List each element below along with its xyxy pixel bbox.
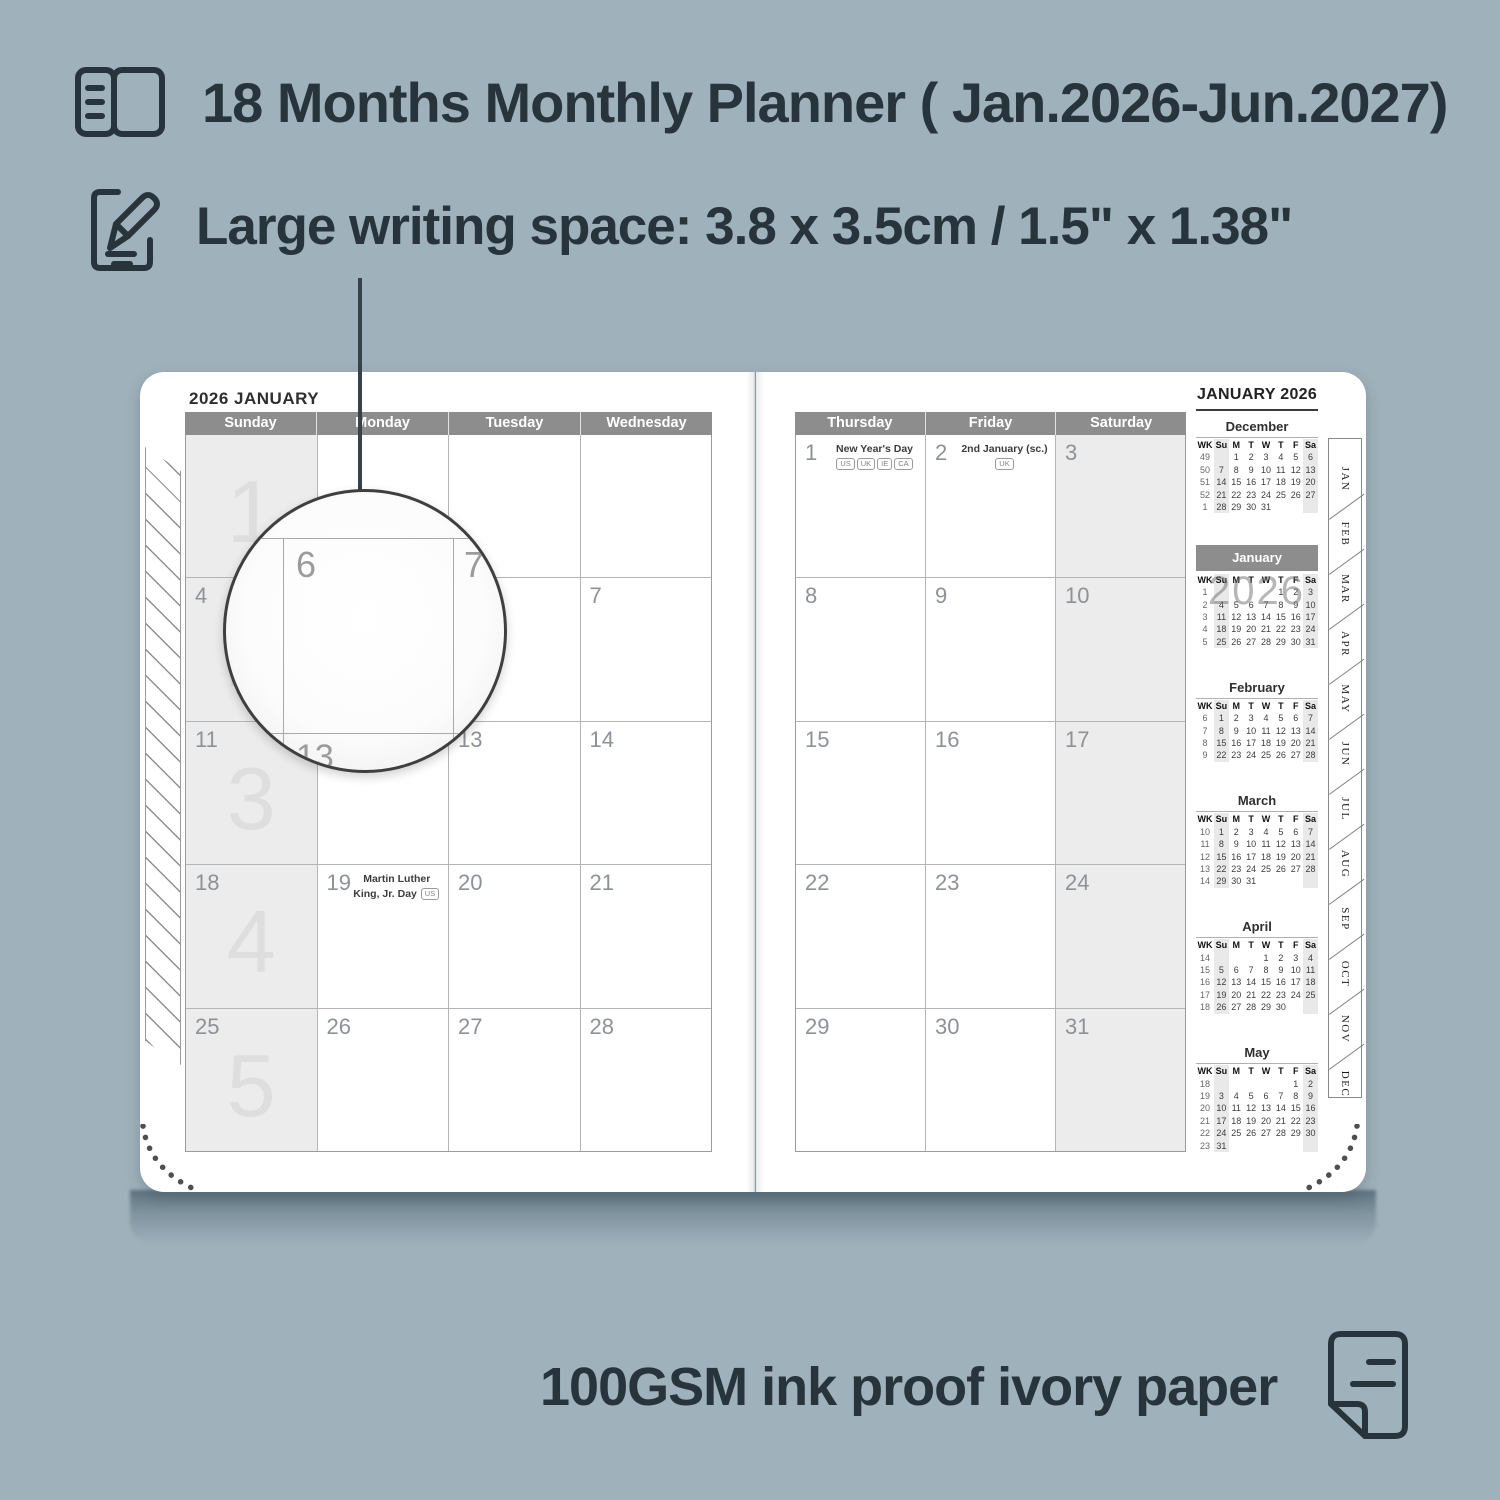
mini-header-cell: M <box>1229 1065 1244 1077</box>
mini-header-cell: T <box>1273 439 1288 451</box>
date-number: 29 <box>805 1014 829 1040</box>
mini-week-number: 2 <box>1196 599 1214 611</box>
mini-week-number: 10 <box>1196 826 1214 838</box>
mini-day-cell: 3 <box>1303 586 1318 598</box>
mini-day-cell: 31 <box>1214 1140 1229 1152</box>
mini-day-cell: 16 <box>1244 476 1259 488</box>
mini-day-cell: 30 <box>1273 1001 1288 1013</box>
date-number: 30 <box>935 1014 959 1040</box>
mini-week-number: 12 <box>1196 851 1214 863</box>
mini-day-cell <box>1303 1001 1318 1013</box>
feature-paper-text: 100GSM ink proof ivory paper <box>540 1356 1277 1418</box>
mini-day-cell: 25 <box>1303 989 1318 1001</box>
mini-day-cell: 30 <box>1244 501 1259 513</box>
day-cell: 22 <box>796 865 925 1007</box>
mini-week-number: 22 <box>1196 1127 1214 1139</box>
mini-day-cell: 26 <box>1273 863 1288 875</box>
day-cell: 9 <box>925 578 1055 720</box>
mini-day-cell: 22 <box>1214 863 1229 875</box>
mini-header-cell: T <box>1244 1065 1259 1077</box>
mini-week-number: 5 <box>1196 636 1214 648</box>
day-header-monday: Monday <box>316 412 448 435</box>
mini-header-cell: W <box>1259 939 1274 951</box>
date-number: 18 <box>195 870 219 896</box>
mini-day-cell: 28 <box>1303 749 1318 761</box>
magnified-date-6: 6 <box>296 544 316 586</box>
mini-day-cell: 28 <box>1273 1127 1288 1139</box>
mini-header-cell: WK <box>1196 1065 1214 1077</box>
mini-day-cell: 29 <box>1273 636 1288 648</box>
mini-day-cell: 15 <box>1288 1102 1303 1114</box>
date-number: 19 <box>327 870 351 896</box>
mini-day-cell: 8 <box>1214 725 1229 737</box>
mini-week-number: 23 <box>1196 1140 1214 1152</box>
holiday-name: New Year's Day <box>836 443 913 455</box>
day-cell: 28 <box>580 1009 712 1151</box>
day-cell: 16 <box>925 722 1055 864</box>
mini-week-number: 50 <box>1196 464 1214 476</box>
day-cell: 14 <box>580 722 712 864</box>
mini-day-cell <box>1288 875 1303 887</box>
mini-day-cell: 24 <box>1303 623 1318 635</box>
mini-header-cell: W <box>1259 439 1274 451</box>
tab-jul: JUL <box>1339 797 1351 820</box>
feature-months-text: 18 Months Monthly Planner ( Jan.2026-Jun… <box>202 70 1447 135</box>
day-cell: 15 <box>796 722 925 864</box>
mini-week-number: 51 <box>1196 476 1214 488</box>
mini-day-cell: 24 <box>1214 1127 1229 1139</box>
book-shadow <box>130 1190 1376 1244</box>
tab-divider <box>1329 769 1365 795</box>
mini-day-cell <box>1214 952 1229 964</box>
tab-feb: FEB <box>1339 522 1351 547</box>
date-number: 25 <box>195 1014 219 1040</box>
mini-week-number: 52 <box>1196 489 1214 501</box>
mini-day-cell: 14 <box>1214 476 1229 488</box>
day-cell: 26 <box>317 1009 449 1151</box>
mini-day-cell: 2 <box>1273 952 1288 964</box>
mini-week-number: 7 <box>1196 725 1214 737</box>
feature-months: 18 Months Monthly Planner ( Jan.2026-Jun… <box>74 66 1447 138</box>
mini-day-cell: 5 <box>1214 964 1229 976</box>
week-number-watermark: 4 <box>227 892 276 994</box>
mini-day-cell: 2 <box>1229 712 1244 724</box>
mini-week-number: 21 <box>1196 1115 1214 1127</box>
mini-day-cell: 7 <box>1273 1090 1288 1102</box>
mini-day-cell: 9 <box>1229 725 1244 737</box>
day-cell: 21 <box>580 865 712 1007</box>
mini-day-cell: 30 <box>1288 636 1303 648</box>
month-grid-body: 1New Year's Day USUKIECA22nd January (sc… <box>795 435 1186 1152</box>
mini-week-number: 1 <box>1196 586 1214 598</box>
tab-divider <box>1329 879 1365 905</box>
sidebar-title: JANUARY 2026 <box>1196 386 1318 404</box>
day-cell: 1New Year's Day USUKIECA <box>796 435 925 577</box>
mini-day-cell: 19 <box>1273 737 1288 749</box>
tab-nov: NOV <box>1339 1015 1351 1043</box>
mini-day-cell <box>1288 1140 1303 1152</box>
day-cell: 7 <box>580 578 712 720</box>
mini-day-cell: 18 <box>1259 851 1274 863</box>
mini-day-cell: 18 <box>1259 737 1274 749</box>
mini-day-cell: 10 <box>1303 599 1318 611</box>
mini-day-cell: 21 <box>1259 623 1274 635</box>
mini-day-cell: 8 <box>1214 838 1229 850</box>
mini-header-cell: Su <box>1214 439 1229 451</box>
date-number: 4 <box>195 583 207 609</box>
mini-calendar-may: MayWKSuMTWTFSa18121934567892010111213141… <box>1196 1045 1318 1152</box>
mini-day-cell: 27 <box>1288 863 1303 875</box>
mini-week-number: 18 <box>1196 1078 1214 1090</box>
mini-day-cell: 21 <box>1244 989 1259 1001</box>
mini-day-cell <box>1244 1140 1259 1152</box>
mini-calendar-stack: DecemberWKSuMTWTFSa491234565078910111213… <box>1196 419 1318 1152</box>
mini-day-cell: 10 <box>1214 1102 1229 1114</box>
mini-month-title: April <box>1196 919 1318 934</box>
mini-week-number: 4 <box>1196 623 1214 635</box>
day-cell: 31 <box>1055 1009 1185 1151</box>
mini-day-cell <box>1229 952 1244 964</box>
mini-week-number: 17 <box>1196 989 1214 1001</box>
mini-day-cell: 29 <box>1229 501 1244 513</box>
mini-day-cell: 3 <box>1288 952 1303 964</box>
date-number: 1 <box>805 440 817 466</box>
tab-oct: OCT <box>1339 961 1351 988</box>
mini-day-cell: 29 <box>1288 1127 1303 1139</box>
paper-sheet-icon <box>1321 1330 1413 1444</box>
mini-day-cell: 1 <box>1214 712 1229 724</box>
mini-header-cell: F <box>1288 439 1303 451</box>
mini-day-cell: 23 <box>1244 489 1259 501</box>
mini-day-cell: 20 <box>1244 623 1259 635</box>
mini-day-cell: 1 <box>1288 1078 1303 1090</box>
mini-day-cell: 22 <box>1273 623 1288 635</box>
mini-day-cell: 29 <box>1259 1001 1274 1013</box>
mini-month-title-highlight: January <box>1196 545 1318 571</box>
mini-day-cell: 6 <box>1288 712 1303 724</box>
mini-day-cell: 16 <box>1288 611 1303 623</box>
country-badge: US <box>836 458 854 470</box>
tab-divider <box>1329 1044 1365 1070</box>
mini-day-cell: 25 <box>1259 863 1274 875</box>
mini-day-cell <box>1288 1001 1303 1013</box>
mini-day-cell: 28 <box>1214 501 1229 513</box>
date-number: 10 <box>1065 583 1089 609</box>
day-cell: 20 <box>448 865 580 1007</box>
mini-day-cell: 25 <box>1273 489 1288 501</box>
day-cell <box>580 435 712 577</box>
mini-day-cell: 4 <box>1273 451 1288 463</box>
tab-may: MAY <box>1339 684 1351 713</box>
day-cell: 17 <box>1055 722 1185 864</box>
holiday-note: New Year's Day USUKIECA <box>828 443 921 471</box>
mini-week-number: 1 <box>1196 501 1214 513</box>
mini-day-cell: 12 <box>1273 838 1288 850</box>
mini-day-cell: 20 <box>1288 851 1303 863</box>
mini-month-table: WKSuMTWTFSa11232456789103111213141516174… <box>1196 573 1318 648</box>
day-header-tuesday: Tuesday <box>448 412 580 435</box>
mini-month-table: WKSuMTWTFSa18121934567892010111213141516… <box>1196 1063 1318 1152</box>
mini-day-cell: 31 <box>1244 875 1259 887</box>
tab-mar: MAR <box>1339 574 1351 604</box>
week-row: 41819Martin Luther King, Jr. Day US2021 <box>186 864 711 1007</box>
mini-calendar-march: MarchWKSuMTWTFSa101234567118910111213141… <box>1196 793 1318 887</box>
mini-day-cell: 9 <box>1244 464 1259 476</box>
mini-week-number: 14 <box>1196 875 1214 887</box>
week-number-watermark: 5 <box>227 1035 276 1137</box>
mini-day-cell: 28 <box>1303 863 1318 875</box>
day-header-friday: Friday <box>925 412 1056 435</box>
mini-day-cell: 3 <box>1214 1090 1229 1102</box>
mini-day-cell: 3 <box>1244 712 1259 724</box>
mini-header-cell: Sa <box>1303 939 1318 951</box>
mini-day-cell: 20 <box>1259 1115 1274 1127</box>
day-header-row: ThursdayFridaySaturday <box>795 412 1186 435</box>
mini-day-cell: 10 <box>1288 964 1303 976</box>
mini-week-number: 49 <box>1196 451 1214 463</box>
date-number: 14 <box>590 727 614 753</box>
mini-week-number: 11 <box>1196 838 1214 850</box>
mini-day-cell: 16 <box>1229 851 1244 863</box>
mini-day-cell: 13 <box>1244 611 1259 623</box>
mini-day-cell <box>1273 1140 1288 1152</box>
mini-header-cell: WK <box>1196 574 1214 586</box>
date-number: 20 <box>458 870 482 896</box>
mini-day-cell <box>1273 1078 1288 1090</box>
book-icon <box>74 66 166 138</box>
mini-month-title: May <box>1196 1045 1318 1060</box>
mini-day-cell: 17 <box>1303 611 1318 623</box>
corner-dots-left <box>138 1124 198 1194</box>
mini-day-cell: 21 <box>1273 1115 1288 1127</box>
mini-day-cell: 13 <box>1288 725 1303 737</box>
day-cell: 30 <box>925 1009 1055 1151</box>
mini-week-number: 6 <box>1196 712 1214 724</box>
week-row: 222324 <box>796 864 1185 1007</box>
mini-day-cell: 15 <box>1229 476 1244 488</box>
mini-day-cell: 26 <box>1214 1001 1229 1013</box>
mini-day-cell: 23 <box>1229 863 1244 875</box>
mini-day-cell: 7 <box>1303 712 1318 724</box>
mini-day-cell: 26 <box>1229 636 1244 648</box>
mini-header-cell: Sa <box>1303 1065 1318 1077</box>
mini-day-cell: 9 <box>1273 964 1288 976</box>
mini-day-cell: 22 <box>1229 489 1244 501</box>
mini-header-cell: T <box>1244 439 1259 451</box>
sidebar-title-rule <box>1196 409 1318 411</box>
mini-header-cell: Su <box>1214 1065 1229 1077</box>
feature-writing-text: Large writing space: 3.8 x 3.5cm / 1.5" … <box>196 196 1292 257</box>
mini-month-title: December <box>1196 419 1318 434</box>
mini-header-cell: Su <box>1214 813 1229 825</box>
mini-header-cell: Su <box>1214 939 1229 951</box>
mini-day-cell: 12 <box>1273 725 1288 737</box>
tab-jan: JAN <box>1339 467 1351 492</box>
mini-day-cell: 6 <box>1259 1090 1274 1102</box>
mini-header-cell: F <box>1288 813 1303 825</box>
mini-day-cell: 1 <box>1229 451 1244 463</box>
mini-month-title: March <box>1196 793 1318 808</box>
mini-day-cell: 20 <box>1229 989 1244 1001</box>
mini-day-cell: 3 <box>1259 451 1274 463</box>
mini-day-cell: 12 <box>1214 976 1229 988</box>
mini-day-cell: 1 <box>1214 826 1229 838</box>
mini-header-cell: F <box>1288 939 1303 951</box>
day-header-sunday: Sunday <box>185 412 316 435</box>
date-number: 9 <box>935 583 947 609</box>
day-cell: 13 <box>448 722 580 864</box>
mini-day-cell: 19 <box>1273 851 1288 863</box>
day-cell: 525 <box>186 1009 317 1151</box>
mini-day-cell: 7 <box>1303 826 1318 838</box>
mini-day-cell: 16 <box>1273 976 1288 988</box>
mini-header-cell: T <box>1273 813 1288 825</box>
mini-day-cell: 27 <box>1288 749 1303 761</box>
page-gutter <box>746 372 764 1192</box>
mini-day-cell <box>1229 1140 1244 1152</box>
mini-day-cell <box>1229 1078 1244 1090</box>
mini-day-cell: 15 <box>1214 737 1229 749</box>
mini-day-cell: 20 <box>1303 476 1318 488</box>
mini-day-cell: 18 <box>1303 976 1318 988</box>
mini-day-cell: 2 <box>1244 451 1259 463</box>
mini-day-cell: 27 <box>1259 1127 1274 1139</box>
mini-day-cell: 25 <box>1214 636 1229 648</box>
mini-day-cell: 6 <box>1229 964 1244 976</box>
date-number: 8 <box>805 583 817 609</box>
mini-day-cell: 8 <box>1273 599 1288 611</box>
mini-day-cell: 29 <box>1214 875 1229 887</box>
mini-day-cell: 11 <box>1303 964 1318 976</box>
mini-month-title: February <box>1196 680 1318 695</box>
mini-day-cell: 13 <box>1229 976 1244 988</box>
mini-day-cell: 25 <box>1259 749 1274 761</box>
mini-header-cell: W <box>1259 574 1274 586</box>
mini-day-cell: 22 <box>1259 989 1274 1001</box>
country-badge: UK <box>995 458 1013 470</box>
tab-aug: AUG <box>1339 850 1351 878</box>
mini-day-cell: 17 <box>1244 851 1259 863</box>
mini-calendar-december: DecemberWKSuMTWTFSa491234565078910111213… <box>1196 419 1318 513</box>
mini-day-cell: 12 <box>1229 611 1244 623</box>
date-number: 11 <box>195 727 218 753</box>
mini-day-cell: 14 <box>1303 725 1318 737</box>
mini-header-cell: M <box>1229 439 1244 451</box>
mini-day-cell <box>1214 451 1229 463</box>
mini-day-cell: 11 <box>1259 838 1274 850</box>
mini-header-cell: W <box>1259 700 1274 712</box>
mini-day-cell: 26 <box>1273 749 1288 761</box>
mini-day-cell: 28 <box>1259 636 1274 648</box>
mini-week-number: 3 <box>1196 611 1214 623</box>
mini-day-cell: 19 <box>1288 476 1303 488</box>
mini-day-cell: 14 <box>1244 976 1259 988</box>
tab-divider <box>1329 989 1365 1015</box>
mini-day-cell: 4 <box>1214 599 1229 611</box>
day-cell: 22nd January (sc.) UK <box>925 435 1055 577</box>
mini-day-cell <box>1288 501 1303 513</box>
date-number: 16 <box>935 727 959 753</box>
tab-jun: JUN <box>1339 742 1351 767</box>
mini-header-cell: T <box>1273 1065 1288 1077</box>
tab-divider <box>1329 714 1365 740</box>
day-cell: 29 <box>796 1009 925 1151</box>
mini-day-cell: 2 <box>1229 826 1244 838</box>
mini-week-number: 9 <box>1196 749 1214 761</box>
mini-week-number: 8 <box>1196 737 1214 749</box>
mini-calendar-april: AprilWKSuMTWTFSa141234155678910111612131… <box>1196 919 1318 1013</box>
mini-day-cell: 31 <box>1303 636 1318 648</box>
date-number: 27 <box>458 1014 482 1040</box>
magnified-grid-line <box>453 538 454 770</box>
mini-day-cell <box>1259 1078 1274 1090</box>
mini-day-cell: 6 <box>1288 826 1303 838</box>
week-row: 8910 <box>796 577 1185 720</box>
mini-header-cell: T <box>1244 700 1259 712</box>
tab-divider <box>1329 824 1365 850</box>
day-cell: 19Martin Luther King, Jr. Day US <box>317 865 449 1007</box>
mini-day-cell: 27 <box>1303 489 1318 501</box>
day-cell: 3 <box>1055 435 1185 577</box>
mini-day-cell: 26 <box>1288 489 1303 501</box>
mini-day-cell: 31 <box>1259 501 1274 513</box>
mini-week-number: 15 <box>1196 964 1214 976</box>
magnifier-circle: 6 7 13 <box>223 489 507 773</box>
day-cell: 418 <box>186 865 317 1007</box>
mini-day-cell: 15 <box>1259 976 1274 988</box>
mini-day-cell: 16 <box>1303 1102 1318 1114</box>
mini-header-cell: WK <box>1196 439 1214 451</box>
mini-header-cell: Sa <box>1303 813 1318 825</box>
mini-day-cell: 4 <box>1229 1090 1244 1102</box>
holiday-name: Martin Luther King, Jr. Day <box>353 873 430 900</box>
mini-day-cell: 11 <box>1214 611 1229 623</box>
mini-header-cell: M <box>1229 700 1244 712</box>
mini-day-cell <box>1244 952 1259 964</box>
pencil-edit-icon <box>84 178 166 274</box>
country-badge: IE <box>877 458 892 470</box>
date-number: 2 <box>935 440 947 466</box>
mini-header-cell: M <box>1229 939 1244 951</box>
holiday-name: 2nd January (sc.) <box>961 443 1047 455</box>
mini-header-cell: T <box>1273 939 1288 951</box>
mini-day-cell <box>1244 586 1259 598</box>
mini-day-cell <box>1259 875 1274 887</box>
holiday-note: Martin Luther King, Jr. Day US <box>350 873 445 901</box>
mini-day-cell: 30 <box>1229 875 1244 887</box>
mini-header-cell: Su <box>1214 574 1229 586</box>
mini-month-table: WKSuMTWTFSa10123456711891011121314121516… <box>1196 811 1318 887</box>
day-cell: 27 <box>448 1009 580 1151</box>
feature-paper: 100GSM ink proof ivory paper <box>540 1330 1413 1444</box>
mini-header-cell: WK <box>1196 700 1214 712</box>
mini-day-cell: 12 <box>1288 464 1303 476</box>
mini-day-cell: 18 <box>1214 623 1229 635</box>
date-number: 21 <box>590 870 614 896</box>
mini-day-cell <box>1273 501 1288 513</box>
mini-day-cell: 6 <box>1244 599 1259 611</box>
day-cell: 8 <box>796 578 925 720</box>
mini-day-cell: 19 <box>1244 1115 1259 1127</box>
mini-header-cell: WK <box>1196 939 1214 951</box>
magnifier-stem-line <box>358 278 362 494</box>
mini-day-cell: 24 <box>1244 749 1259 761</box>
mini-day-cell: 5 <box>1273 712 1288 724</box>
mini-day-cell: 24 <box>1244 863 1259 875</box>
mini-day-cell: 5 <box>1244 1090 1259 1102</box>
date-number: 23 <box>935 870 959 896</box>
mini-day-cell: 11 <box>1259 725 1274 737</box>
